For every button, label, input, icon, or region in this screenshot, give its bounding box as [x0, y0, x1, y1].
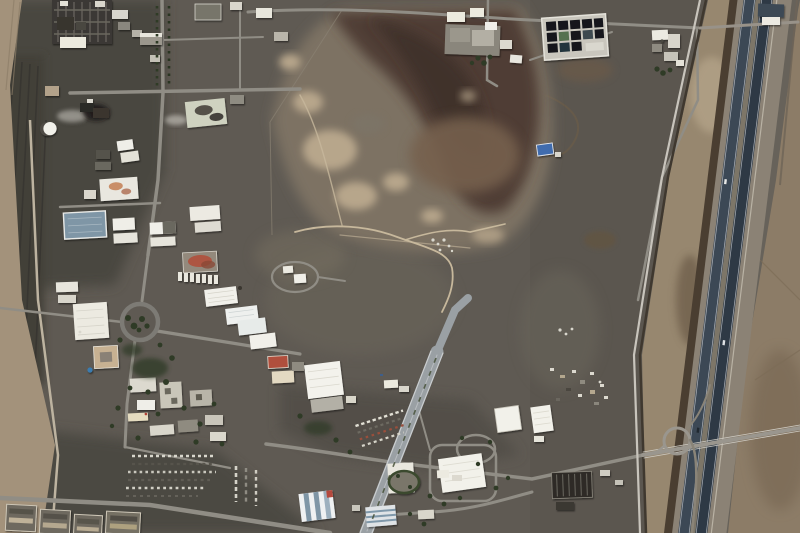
building-nw6-roof — [140, 33, 162, 37]
building-c1 — [230, 95, 244, 104]
satellite-image — [0, 0, 800, 533]
dark-basin-rows — [552, 471, 593, 498]
dirt-scar-1 — [557, 58, 613, 82]
building-n4 — [274, 32, 288, 41]
building-n3 — [256, 8, 272, 18]
blue-roof-neighbor — [555, 152, 561, 157]
blue-vehicle — [380, 374, 383, 376]
striped-roof-building-b — [365, 505, 397, 528]
striped-roof-building-a — [298, 490, 335, 522]
dark-building-nw1 — [57, 17, 74, 30]
swimming-pool — [87, 367, 92, 372]
building-n2 — [230, 2, 242, 10]
pond-white-pad — [585, 42, 604, 51]
loop-building-1 — [283, 266, 293, 274]
dark-building-nw2 — [76, 22, 86, 30]
red-corner — [326, 490, 333, 498]
water-treatment-ponds — [542, 14, 609, 60]
tan-pad — [45, 86, 59, 96]
terrain-mottle-2 — [255, 230, 345, 280]
pond-green-cell — [559, 31, 570, 41]
building-w1 — [96, 150, 110, 159]
blue-roof-building — [536, 143, 553, 156]
mound-gray-patch — [352, 114, 384, 134]
small-structure-dot — [238, 286, 242, 290]
building-n1 — [195, 4, 221, 20]
building-nw7 — [150, 55, 160, 62]
red-roof-building — [182, 251, 217, 273]
ne-white-building — [494, 405, 521, 432]
dirt-scar-2 — [584, 231, 616, 249]
loop-building-2 — [294, 274, 307, 284]
white-building-nw1 — [60, 37, 86, 48]
cream-building — [128, 412, 148, 421]
fuel-canopy — [384, 380, 398, 389]
building-w2 — [95, 162, 111, 170]
building-nw3 — [112, 10, 128, 19]
building-nw4 — [118, 22, 130, 30]
mound-se-lobe — [410, 117, 520, 193]
satellite-canvas — [0, 0, 800, 533]
